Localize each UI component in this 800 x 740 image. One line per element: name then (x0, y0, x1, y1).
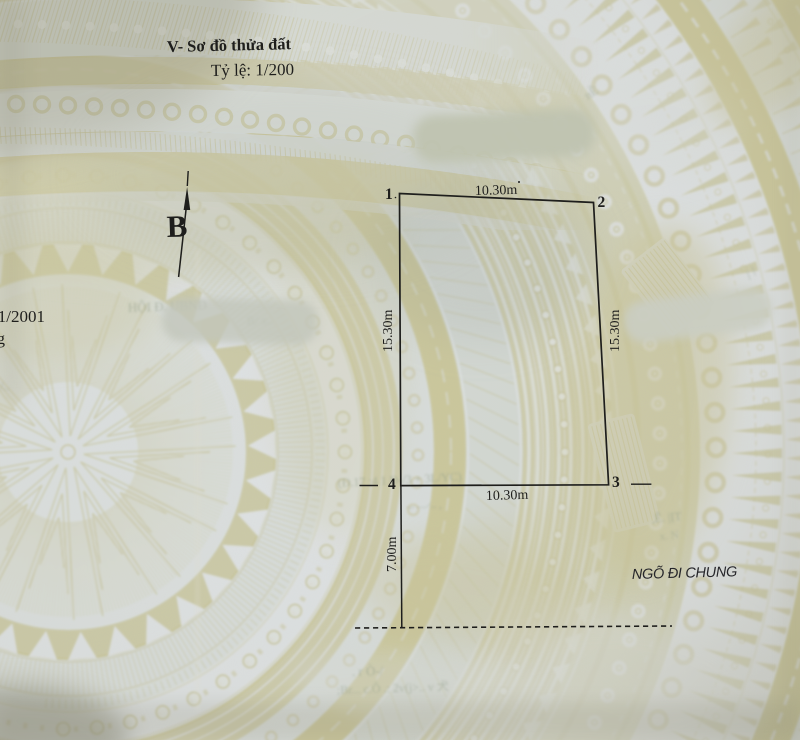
svg-text:V- Sơ đồ thửa đất: V- Sơ đồ thửa đất (167, 34, 292, 56)
svg-text:x. N: x. N (659, 529, 679, 543)
svg-text:3: 3 (612, 474, 620, 491)
svg-text:10.30m: 10.30m (486, 488, 529, 504)
svg-text:15.30m: 15.30m (608, 310, 623, 353)
svg-text::1/2001: :1/2001 (0, 307, 45, 326)
svg-text:/..: /.. (0, 379, 9, 393)
svg-text:NGÕ ĐI CHUNG: NGÕ ĐI CHUNG (632, 563, 738, 583)
svg-text:7.00m: 7.00m (385, 537, 400, 573)
svg-text:15.30m: 15.30m (381, 310, 396, 353)
svg-text:1: 1 (385, 186, 393, 203)
svg-text:B: B (166, 208, 188, 244)
svg-text:Tỷ lệ: 1/200: Tỷ lệ: 1/200 (211, 60, 294, 80)
svg-text:4: 4 (388, 476, 396, 493)
svg-text:ng: ng (0, 329, 6, 348)
svg-text:.,. ... ̷ .. ,: .,. ... ̷ .. , (406, 499, 442, 511)
svg-text:. r Ò-/: . r Ò-/ (352, 663, 384, 679)
svg-text:10.30m: 10.30m (475, 183, 518, 199)
svg-text:2: 2 (598, 194, 606, 211)
